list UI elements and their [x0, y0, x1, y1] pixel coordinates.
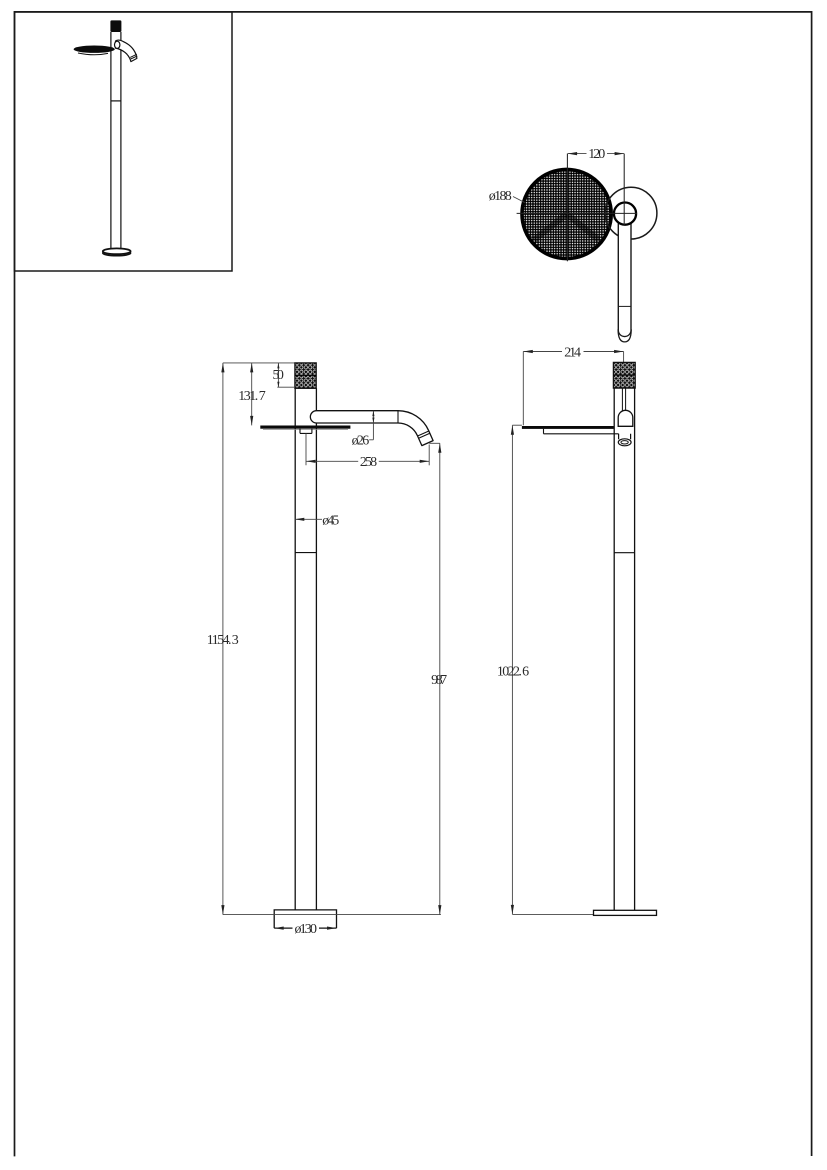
- svg-text:120: 120: [588, 147, 605, 162]
- svg-text:1022. 6: 1022. 6: [497, 665, 529, 680]
- svg-text:131. 7: 131. 7: [238, 389, 266, 404]
- svg-text:258: 258: [360, 455, 377, 470]
- svg-text:ø45: ø45: [322, 513, 339, 528]
- svg-text:ø130: ø130: [294, 922, 317, 937]
- svg-text:987: 987: [431, 673, 447, 688]
- svg-text:ø26: ø26: [352, 434, 370, 449]
- svg-text:50: 50: [273, 368, 284, 383]
- svg-text:214: 214: [564, 345, 581, 360]
- svg-text:ø188: ø188: [489, 189, 512, 204]
- svg-text:1154. 3: 1154. 3: [207, 633, 239, 648]
